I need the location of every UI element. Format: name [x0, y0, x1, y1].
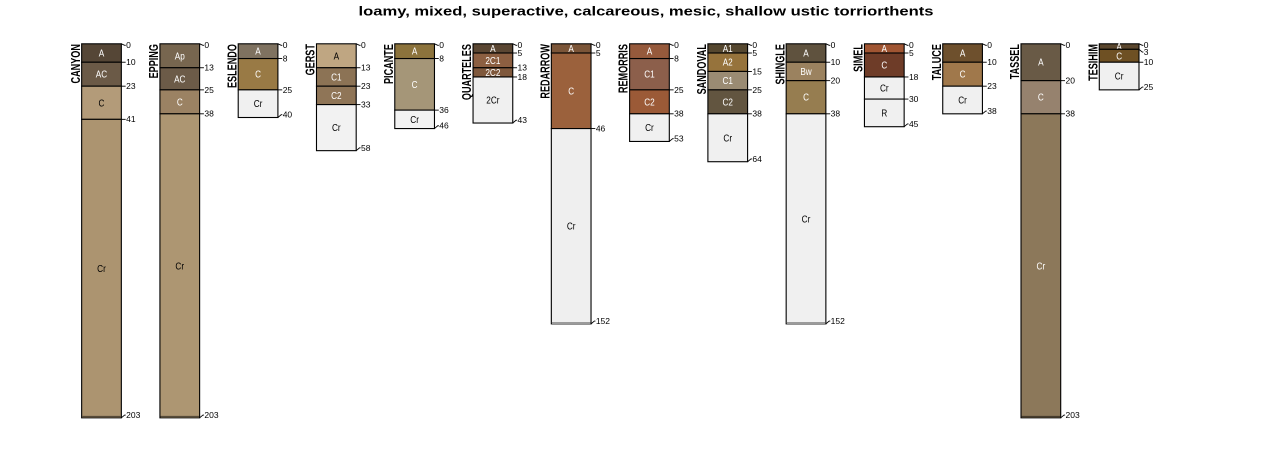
svg-text:PICANTE: PICANTE: [382, 44, 396, 84]
svg-text:Cr: Cr: [802, 214, 811, 225]
svg-text:8: 8: [674, 53, 679, 63]
svg-text:R: R: [881, 108, 887, 119]
svg-text:23: 23: [126, 81, 136, 91]
svg-text:A: A: [334, 51, 340, 62]
svg-text:8: 8: [439, 53, 444, 63]
svg-text:152: 152: [831, 316, 845, 326]
svg-text:45: 45: [909, 119, 919, 129]
svg-text:0: 0: [674, 40, 679, 50]
svg-text:A: A: [412, 47, 418, 58]
svg-text:REDARROW: REDARROW: [538, 44, 552, 99]
svg-text:13: 13: [204, 63, 214, 73]
svg-text:36: 36: [439, 105, 449, 115]
svg-text:38: 38: [752, 109, 762, 119]
svg-text:Cr: Cr: [175, 261, 184, 272]
svg-text:46: 46: [439, 121, 449, 131]
svg-text:38: 38: [987, 106, 997, 116]
svg-text:64: 64: [752, 154, 762, 164]
svg-text:41: 41: [126, 114, 136, 124]
svg-text:C1: C1: [331, 72, 342, 83]
svg-text:43: 43: [518, 115, 528, 125]
svg-text:C1: C1: [722, 76, 733, 87]
svg-text:Cr: Cr: [254, 99, 263, 110]
svg-text:Bw: Bw: [800, 67, 812, 78]
svg-text:A: A: [960, 49, 966, 60]
svg-text:Cr: Cr: [410, 115, 419, 126]
svg-text:0: 0: [987, 40, 992, 50]
svg-text:Cr: Cr: [723, 133, 732, 144]
svg-text:20: 20: [831, 76, 841, 86]
svg-text:38: 38: [1066, 109, 1076, 119]
svg-text:TALUCE: TALUCE: [930, 44, 944, 80]
svg-text:10: 10: [1144, 57, 1154, 67]
svg-text:C2: C2: [331, 91, 342, 102]
svg-text:40: 40: [283, 110, 293, 120]
svg-text:C: C: [99, 98, 105, 109]
svg-text:18: 18: [909, 72, 919, 82]
svg-text:152: 152: [596, 316, 610, 326]
svg-text:Cr: Cr: [1037, 261, 1046, 272]
svg-text:5: 5: [909, 48, 914, 58]
svg-text:25: 25: [204, 85, 214, 95]
svg-text:25: 25: [674, 85, 684, 95]
svg-text:23: 23: [987, 81, 997, 91]
svg-text:5: 5: [518, 48, 523, 58]
svg-text:38: 38: [831, 109, 841, 119]
svg-text:10: 10: [831, 57, 841, 67]
svg-text:Cr: Cr: [958, 96, 967, 107]
svg-text:A: A: [803, 49, 809, 60]
svg-text:GERST: GERST: [304, 44, 318, 76]
svg-text:30: 30: [909, 94, 919, 104]
svg-text:A: A: [255, 47, 261, 58]
svg-text:3: 3: [1144, 47, 1149, 57]
svg-text:25: 25: [283, 85, 293, 95]
svg-text:15: 15: [752, 66, 762, 76]
svg-text:0: 0: [1066, 40, 1071, 50]
svg-text:53: 53: [674, 134, 684, 144]
svg-text:203: 203: [126, 410, 140, 420]
svg-text:5: 5: [752, 48, 757, 58]
svg-text:QUARTELES: QUARTELES: [460, 44, 474, 100]
svg-text:Ap: Ap: [175, 51, 185, 62]
svg-text:203: 203: [1066, 410, 1080, 420]
svg-text:C: C: [568, 86, 574, 97]
svg-text:Cr: Cr: [1115, 72, 1124, 83]
svg-text:18: 18: [518, 72, 528, 82]
svg-text:REMORRIS: REMORRIS: [617, 44, 631, 93]
svg-text:SHINGLE: SHINGLE: [773, 44, 787, 84]
svg-text:33: 33: [361, 99, 371, 109]
svg-text:38: 38: [674, 109, 684, 119]
svg-text:0: 0: [204, 40, 209, 50]
svg-text:46: 46: [596, 123, 606, 133]
svg-text:8: 8: [283, 53, 288, 63]
svg-text:23: 23: [361, 81, 371, 91]
svg-text:2C1: 2C1: [485, 56, 500, 67]
svg-text:SIMEL: SIMEL: [852, 44, 866, 72]
svg-text:0: 0: [831, 40, 836, 50]
svg-text:20: 20: [1066, 76, 1076, 86]
svg-text:A: A: [647, 47, 653, 58]
svg-text:CANYON: CANYON: [69, 44, 83, 83]
svg-text:25: 25: [752, 85, 762, 95]
svg-text:13: 13: [361, 63, 371, 73]
svg-text:SANDOVAL: SANDOVAL: [695, 44, 709, 95]
svg-text:TASSEL: TASSEL: [1008, 44, 1022, 79]
svg-text:A2: A2: [723, 58, 733, 69]
svg-text:0: 0: [439, 40, 444, 50]
svg-text:25: 25: [1144, 82, 1154, 92]
svg-text:10: 10: [987, 57, 997, 67]
svg-text:5: 5: [596, 48, 601, 58]
svg-text:C: C: [960, 70, 966, 81]
svg-text:AC: AC: [96, 70, 107, 81]
svg-text:2Cr: 2Cr: [486, 96, 500, 107]
svg-text:38: 38: [204, 109, 214, 119]
svg-text:C2: C2: [722, 97, 733, 108]
svg-text:C2: C2: [644, 97, 655, 108]
svg-text:loamy, mixed, superactive, cal: loamy, mixed, superactive, calcareous, m…: [359, 3, 934, 18]
svg-text:0: 0: [283, 40, 288, 50]
svg-text:0: 0: [361, 40, 366, 50]
svg-text:58: 58: [361, 143, 371, 153]
svg-text:C: C: [412, 80, 418, 91]
svg-text:C: C: [1116, 51, 1122, 62]
svg-text:TESIHIM: TESIHIM: [1086, 44, 1100, 81]
svg-text:ESLENDO: ESLENDO: [225, 44, 239, 88]
svg-text:Cr: Cr: [332, 123, 341, 134]
svg-text:10: 10: [126, 57, 136, 67]
svg-text:C1: C1: [644, 70, 655, 81]
svg-text:A: A: [1038, 58, 1044, 69]
svg-text:Cr: Cr: [97, 264, 106, 275]
svg-text:0: 0: [126, 40, 131, 50]
svg-text:EPPING: EPPING: [147, 44, 161, 78]
svg-text:C: C: [177, 97, 183, 108]
svg-text:203: 203: [204, 410, 218, 420]
svg-text:Cr: Cr: [567, 222, 576, 233]
svg-text:Cr: Cr: [645, 123, 654, 134]
svg-text:C: C: [1038, 93, 1044, 104]
svg-text:Cr: Cr: [880, 84, 889, 95]
svg-text:C: C: [803, 93, 809, 104]
svg-text:C: C: [255, 70, 261, 81]
svg-text:A: A: [99, 49, 105, 60]
svg-text:AC: AC: [174, 74, 185, 85]
svg-text:C: C: [881, 60, 887, 71]
